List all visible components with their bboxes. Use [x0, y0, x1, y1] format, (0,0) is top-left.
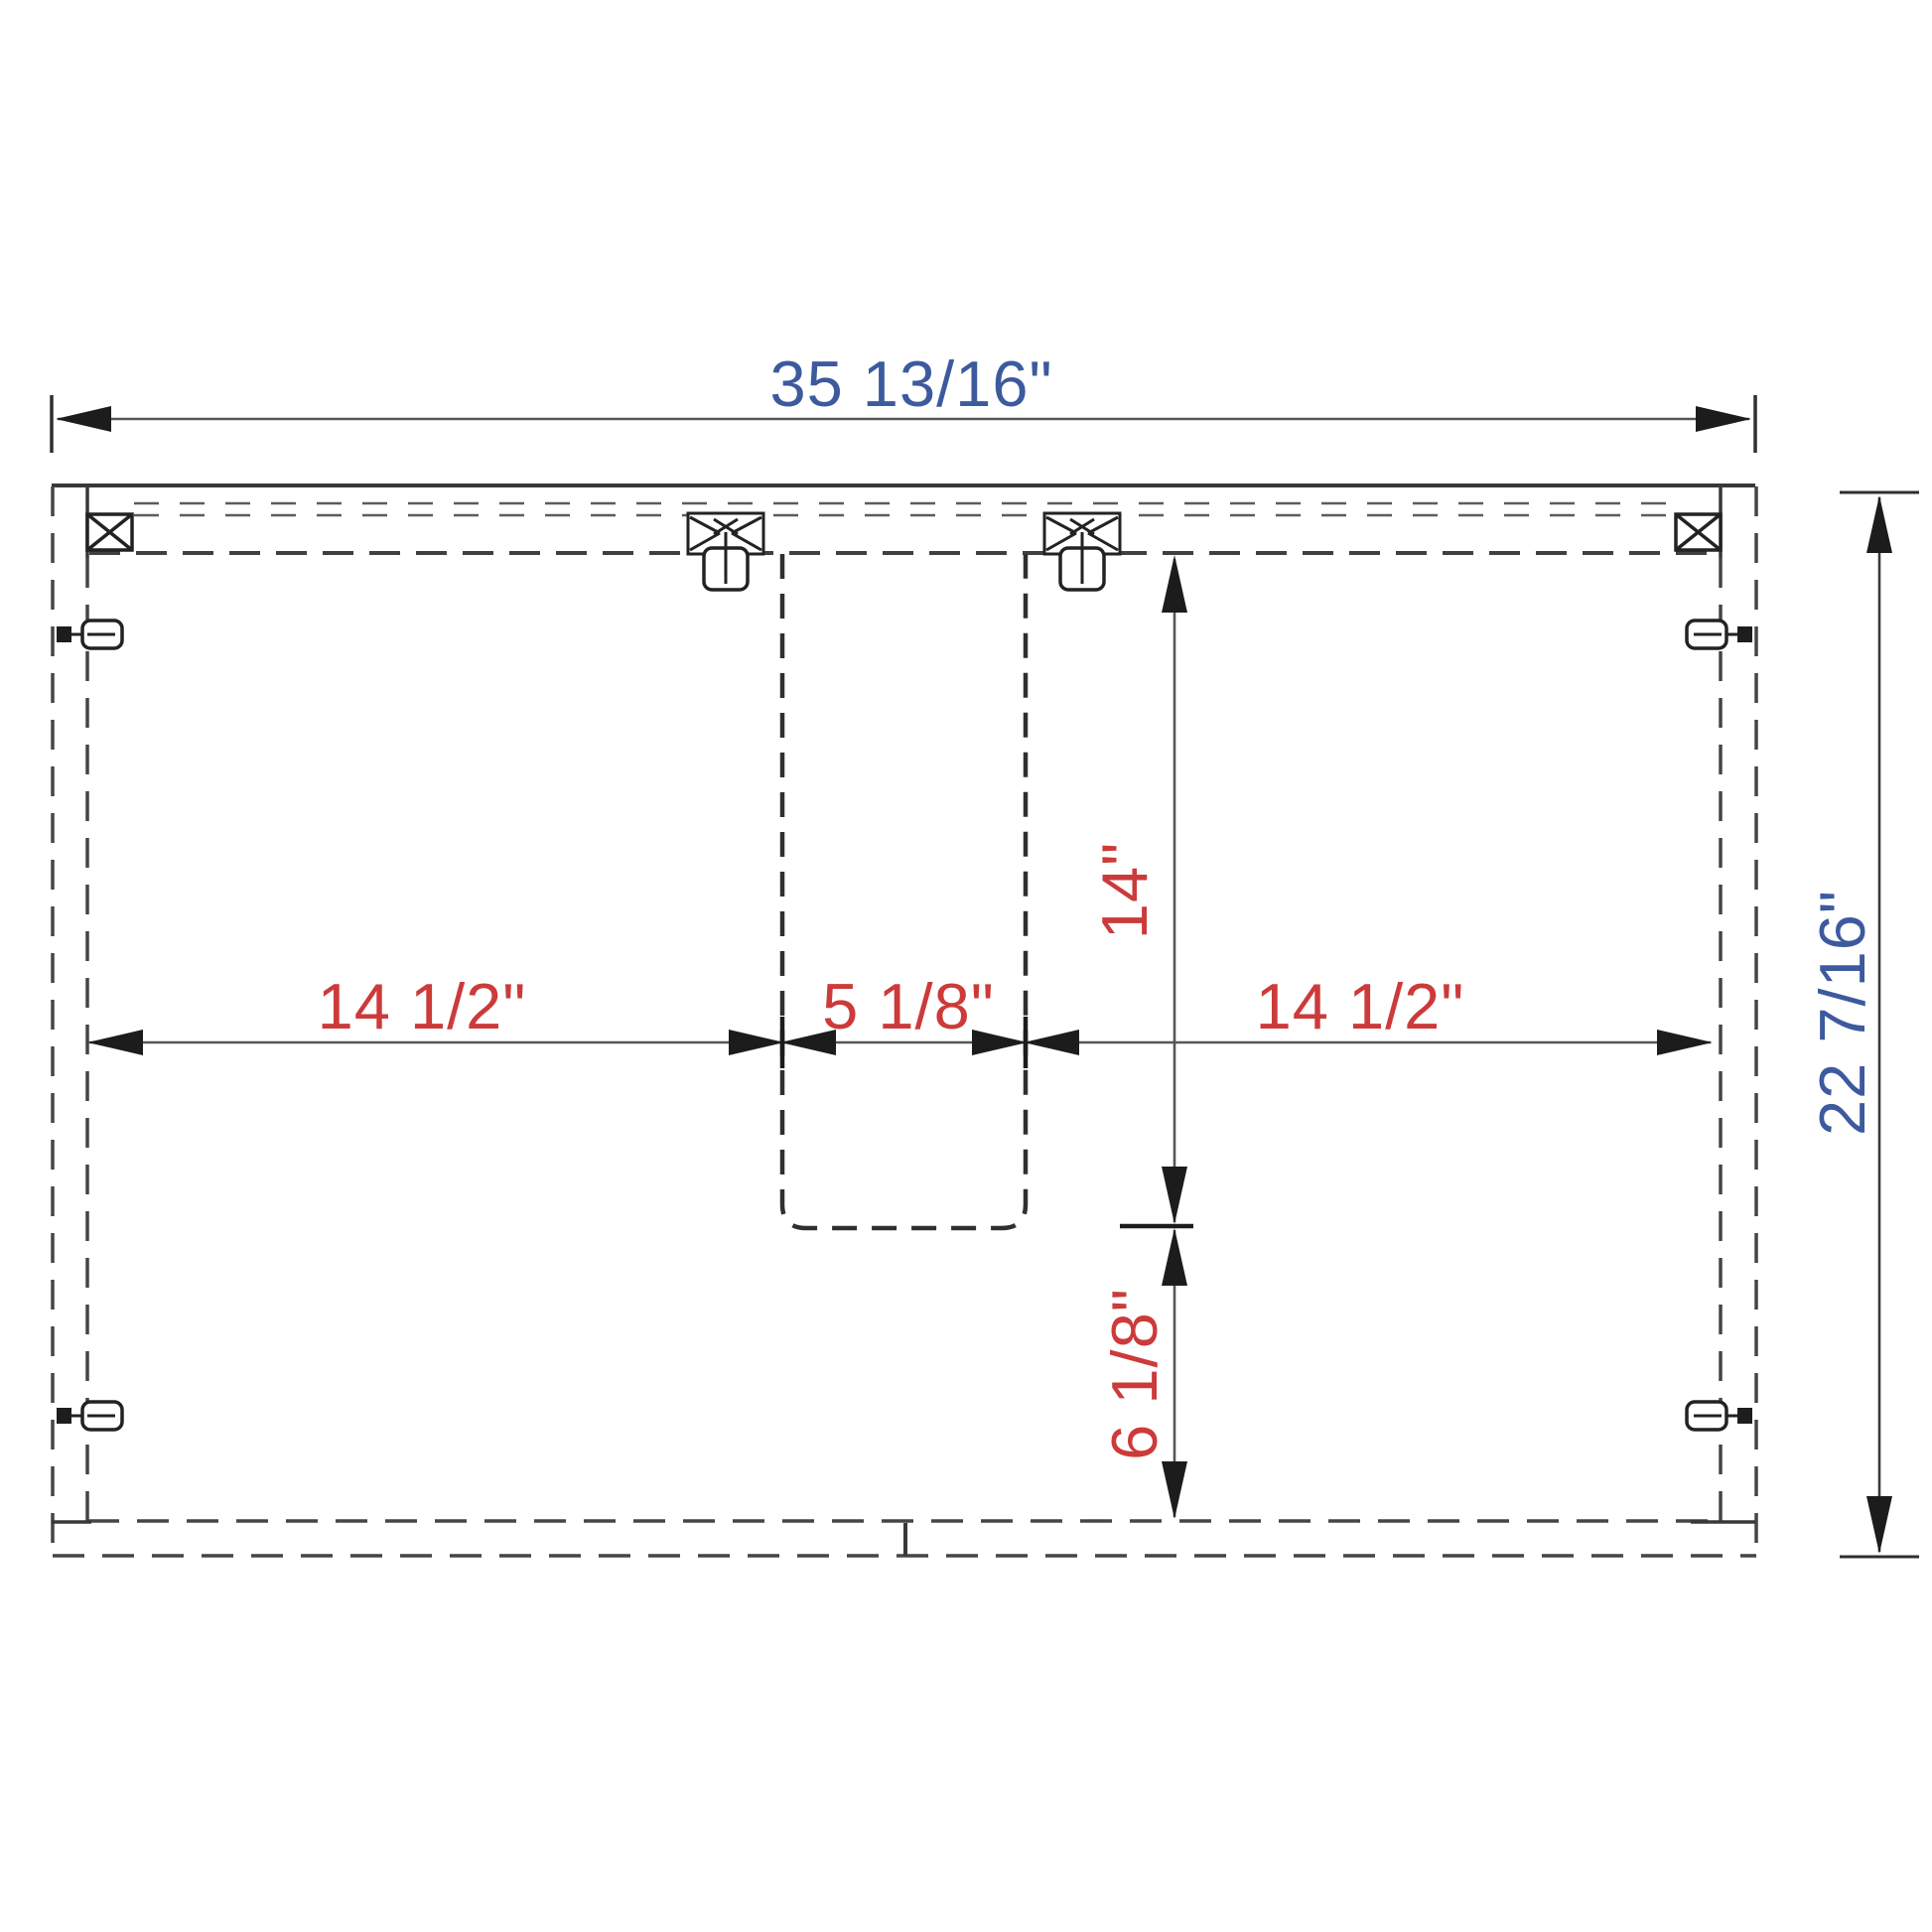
dowel-screw-fitting-right	[1044, 513, 1120, 590]
dowel-screw-fitting-left	[688, 513, 763, 590]
cam-lock-left-lower	[57, 1402, 122, 1430]
cam-lock-left-upper	[57, 621, 122, 648]
corner-bracket-left	[87, 514, 132, 550]
arrowhead-up	[1866, 495, 1892, 553]
arrowhead-right	[1657, 1030, 1713, 1055]
arrowhead-right	[1696, 406, 1751, 432]
arrowhead-left	[87, 1030, 143, 1055]
cam-lock-right-lower	[1687, 1402, 1752, 1430]
drawing-page: 35 13/16" 22 7/16" 14 1/2" 5 1/8" 14 1/2…	[0, 0, 1932, 1932]
cutout-depth-label: 14"	[1088, 842, 1161, 939]
arrowhead-up	[1162, 1228, 1187, 1286]
dimension-horizontal-details: 14 1/2" 5 1/8" 14 1/2"	[87, 970, 1713, 1068]
corner-bracket-right	[1676, 514, 1721, 550]
dimension-overall-height: 22 7/16"	[1806, 492, 1919, 1557]
arrowhead-right	[729, 1030, 784, 1055]
cam-lock-right-upper	[1687, 621, 1752, 648]
left-opening-label: 14 1/2"	[318, 970, 527, 1042]
bottom-offset-label: 6 1/8"	[1098, 1288, 1171, 1460]
arrowhead-down	[1162, 1167, 1187, 1224]
dimension-bottom-offset: 6 1/8"	[1098, 1228, 1187, 1519]
dimension-cutout-depth: 14"	[1088, 555, 1193, 1226]
arrowhead-left	[56, 406, 111, 432]
overall-width-label: 35 13/16"	[769, 347, 1052, 420]
sink-cutout	[782, 554, 1026, 1228]
right-opening-label: 14 1/2"	[1256, 970, 1465, 1042]
overall-height-label: 22 7/16"	[1806, 890, 1878, 1136]
dimension-overall-width: 35 13/16"	[52, 347, 1755, 453]
cutout-width-label: 5 1/8"	[822, 970, 995, 1042]
arrowhead-down	[1162, 1461, 1187, 1519]
cabinet-drawing: 35 13/16" 22 7/16" 14 1/2" 5 1/8" 14 1/2…	[0, 0, 1932, 1932]
sink-cutout-outline	[782, 554, 1026, 1228]
arrowhead-left	[1024, 1030, 1079, 1055]
arrowhead-down	[1866, 1496, 1892, 1554]
arrowhead-up	[1162, 555, 1187, 613]
